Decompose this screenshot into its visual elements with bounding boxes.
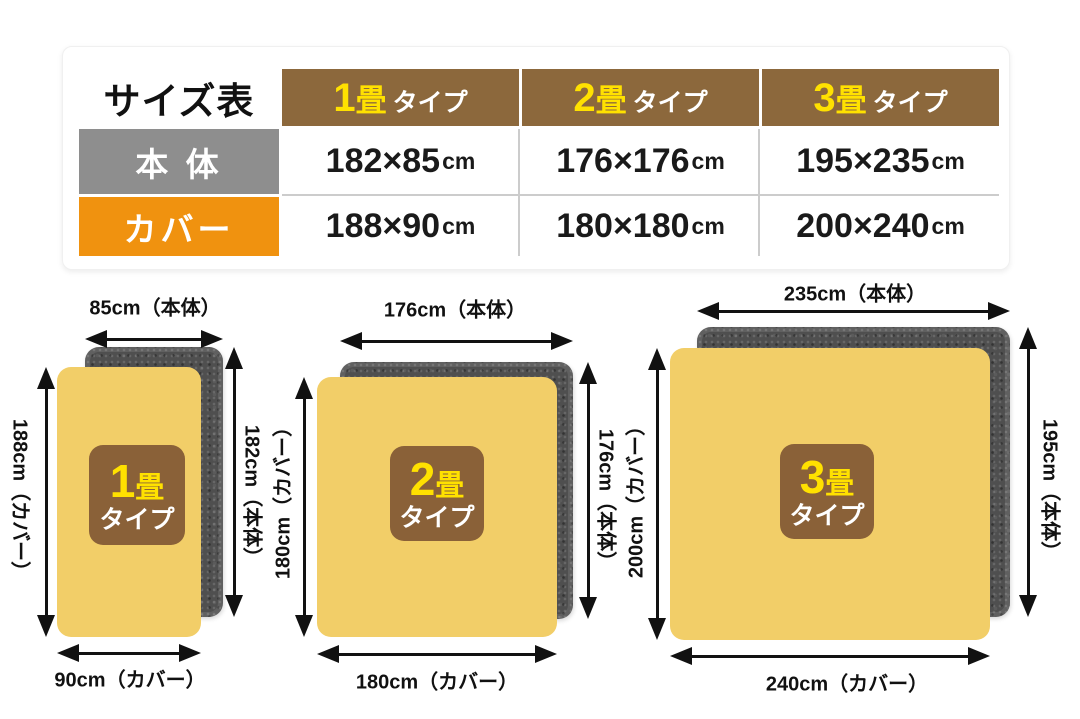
- type-badge-3tatami: 3 畳 タイプ: [780, 444, 874, 539]
- column-tatami: 畳: [356, 75, 387, 120]
- column-tatami: 畳: [836, 75, 867, 120]
- dim-arrow-top: [85, 330, 223, 348]
- column-tatami: 畳: [596, 75, 627, 120]
- dim-label-left: 180cm（カバー）: [267, 417, 296, 579]
- arrow-head-top: [1019, 327, 1037, 349]
- badge-type-label: タイプ: [99, 508, 174, 533]
- arrow-head-right: [535, 645, 557, 663]
- size-value-body-2tatami: 176×176 cm: [522, 129, 759, 194]
- size-value-cover-1tatami: 188×90 cm: [282, 197, 519, 256]
- size-chart-infographic: サイズ表 1 畳 タイプ 2 畳 タイプ 3 畳 タイプ: [0, 0, 1080, 719]
- unit-text: cm: [442, 213, 475, 240]
- dims-text: 176×176: [556, 142, 689, 181]
- column-header-text: 2 畳 タイプ: [573, 75, 707, 121]
- badge-number: 2: [410, 456, 436, 502]
- size-table: サイズ表 1 畳 タイプ 2 畳 タイプ 3 畳 タイプ: [79, 69, 999, 256]
- arrow-head-left: [85, 330, 107, 348]
- arrow-head-left: [670, 647, 692, 665]
- arrow-shaft: [656, 370, 659, 618]
- dims-text: 182×85: [326, 142, 440, 181]
- column-header-3tatami: 3 畳 タイプ: [762, 69, 999, 126]
- column-suffix: タイプ: [393, 83, 468, 119]
- dim-label-top: 176cm（本体）: [384, 294, 526, 323]
- badge-number: 3: [800, 454, 826, 500]
- arrow-shaft: [362, 340, 551, 343]
- arrow-head-right: [988, 302, 1010, 320]
- dim-label-right: 182cm（本体）: [240, 425, 269, 567]
- unit-text: cm: [692, 213, 725, 240]
- arrow-head-top: [225, 347, 243, 369]
- size-table-title: サイズ表: [79, 69, 279, 126]
- dim-label-left: 200cm（カバー）: [620, 416, 649, 578]
- badge-tatami: 畳: [825, 470, 854, 499]
- dim-arrow-bottom: [317, 645, 557, 663]
- arrow-shaft: [692, 655, 968, 658]
- arrow-head-right: [968, 647, 990, 665]
- size-table-card: サイズ表 1 畳 タイプ 2 畳 タイプ 3 畳 タイプ: [62, 46, 1010, 270]
- arrow-head-right: [551, 332, 573, 350]
- dims-text: 188×90: [326, 207, 440, 246]
- type-badge-2tatami: 2 畳 タイプ: [390, 446, 484, 541]
- dim-label-right: 176cm（本体）: [594, 429, 623, 571]
- type-badge-1tatami: 1 畳 タイプ: [89, 445, 185, 545]
- dim-label-bottom: 240cm（カバー）: [766, 668, 928, 697]
- unit-text: cm: [692, 148, 725, 175]
- size-value-body-3tatami: 195×235 cm: [762, 129, 999, 194]
- unit-text: cm: [442, 148, 475, 175]
- badge-tatami: 畳: [135, 474, 164, 503]
- arrow-head-top: [648, 348, 666, 370]
- badge-tatami: 畳: [435, 472, 464, 501]
- arrow-head-left: [57, 644, 79, 662]
- arrow-shaft: [303, 399, 306, 615]
- column-header-text: 1 畳 タイプ: [333, 75, 467, 121]
- badge-line1: 1 畳: [110, 458, 165, 504]
- column-divider: [758, 129, 760, 256]
- row-label-body: 本 体: [79, 129, 279, 194]
- arrow-shaft: [339, 653, 535, 656]
- badge-type-label: タイプ: [399, 506, 474, 531]
- arrow-head-bottom: [648, 618, 666, 640]
- column-divider: [518, 129, 520, 256]
- row-label-cover: カバー: [79, 197, 279, 256]
- arrow-head-left: [340, 332, 362, 350]
- arrow-shaft: [107, 338, 201, 341]
- arrow-shaft: [1027, 349, 1030, 595]
- dim-arrow-left: [648, 348, 666, 640]
- dim-arrow-top: [340, 332, 573, 350]
- arrow-head-right: [179, 644, 201, 662]
- column-number: 2: [573, 76, 595, 121]
- unit-text: cm: [932, 148, 965, 175]
- arrow-shaft: [719, 310, 988, 313]
- dim-label-right: 195cm（本体）: [1038, 419, 1067, 561]
- arrow-head-left: [697, 302, 719, 320]
- column-suffix: タイプ: [633, 83, 708, 119]
- arrow-head-bottom: [37, 615, 55, 637]
- badge-type-label: タイプ: [789, 504, 864, 529]
- dim-label-bottom: 180cm（カバー）: [356, 666, 518, 695]
- arrow-shaft: [79, 652, 179, 655]
- column-number: 3: [813, 76, 835, 121]
- column-suffix: タイプ: [873, 83, 948, 119]
- badge-line1: 2 畳: [410, 456, 465, 502]
- unit-text: cm: [932, 213, 965, 240]
- badge-number: 1: [110, 458, 136, 504]
- row-divider: [282, 194, 999, 196]
- dims-text: 180×180: [556, 207, 689, 246]
- size-value-cover-2tatami: 180×180 cm: [522, 197, 759, 256]
- arrow-shaft: [233, 369, 236, 595]
- badge-line1: 3 畳: [800, 454, 855, 500]
- dim-arrow-right: [1019, 327, 1037, 617]
- arrow-head-top: [295, 377, 313, 399]
- arrow-shaft: [45, 389, 48, 615]
- arrow-head-top: [37, 367, 55, 389]
- arrow-head-bottom: [579, 597, 597, 619]
- dim-arrow-left: [295, 377, 313, 637]
- column-number: 1: [333, 76, 355, 121]
- dim-label-top: 85cm（本体）: [89, 292, 220, 321]
- size-value-body-1tatami: 182×85 cm: [282, 129, 519, 194]
- dims-text: 200×240: [796, 207, 929, 246]
- column-header-text: 3 畳 タイプ: [813, 75, 947, 121]
- arrow-head-left: [317, 645, 339, 663]
- arrow-head-bottom: [225, 595, 243, 617]
- arrow-shaft: [587, 384, 590, 597]
- arrow-head-right: [201, 330, 223, 348]
- dim-arrow-left: [37, 367, 55, 637]
- dim-arrow-bottom: [670, 647, 990, 665]
- dim-label-left: 188cm（カバー）: [8, 419, 37, 581]
- column-header-1tatami: 1 畳 タイプ: [282, 69, 519, 126]
- dims-text: 195×235: [796, 142, 929, 181]
- dim-label-bottom: 90cm（カバー）: [54, 664, 205, 693]
- arrow-head-top: [579, 362, 597, 384]
- arrow-head-bottom: [295, 615, 313, 637]
- column-header-2tatami: 2 畳 タイプ: [522, 69, 759, 126]
- size-value-cover-3tatami: 200×240 cm: [762, 197, 999, 256]
- dim-label-top: 235cm（本体）: [784, 278, 926, 307]
- arrow-head-bottom: [1019, 595, 1037, 617]
- dim-arrow-bottom: [57, 644, 201, 662]
